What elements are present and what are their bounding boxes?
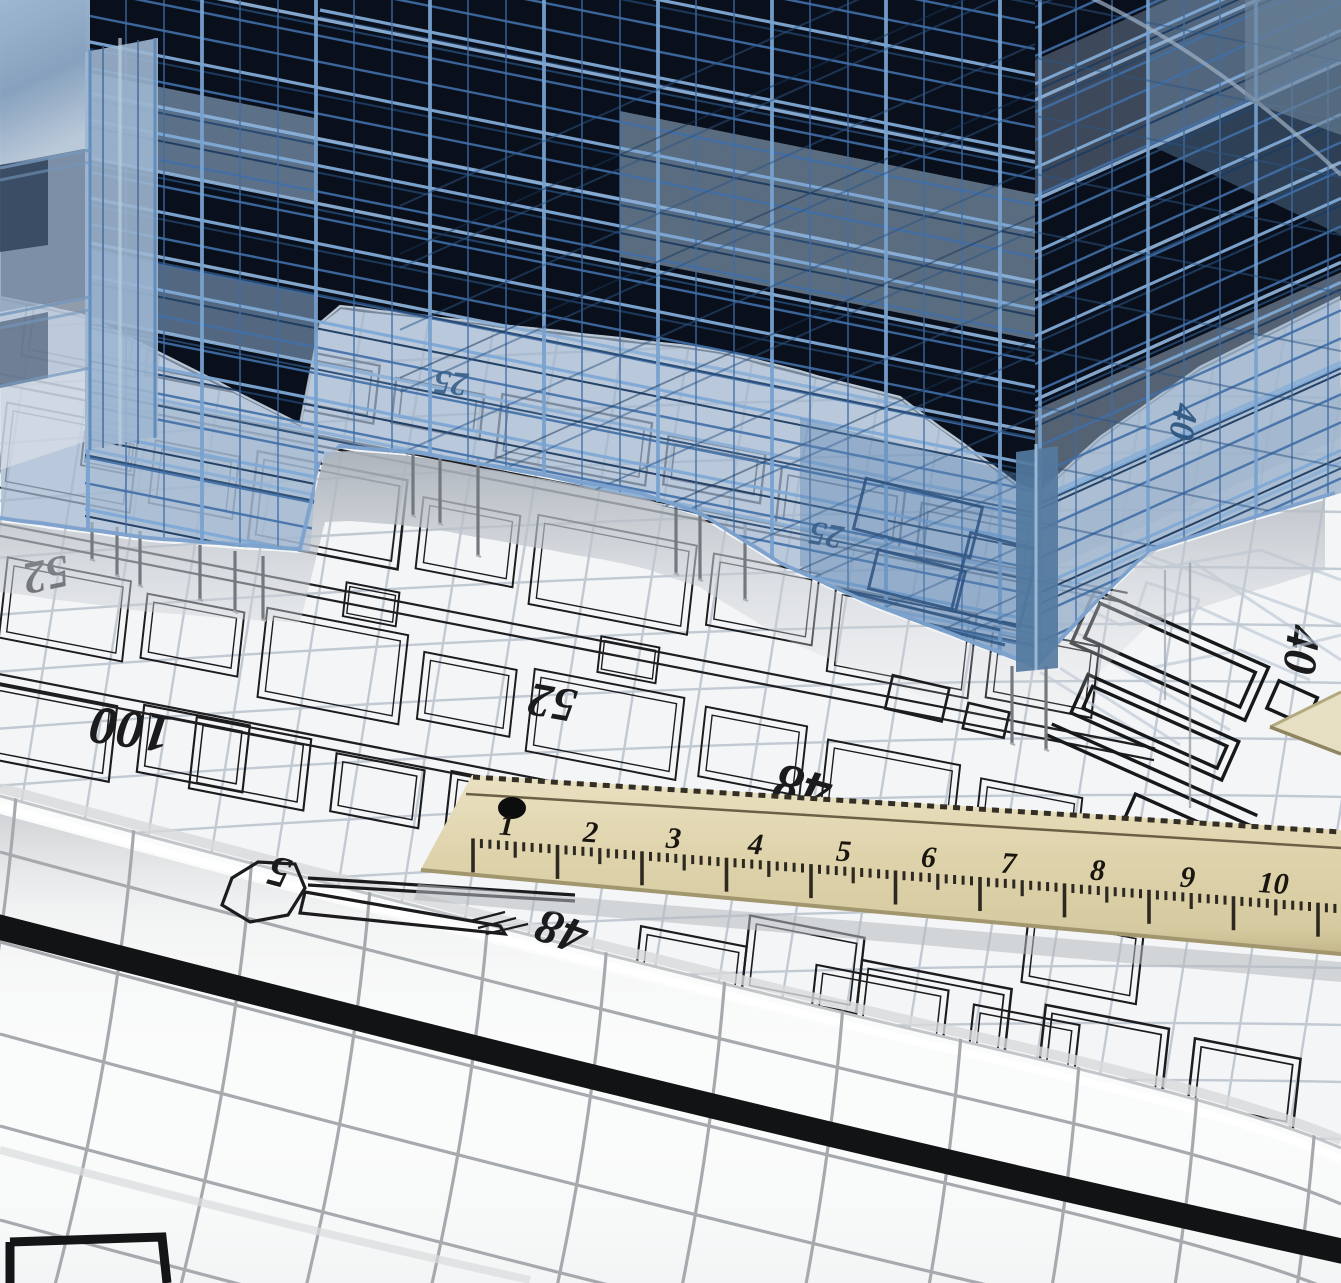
svg-text:100: 100 <box>86 694 175 765</box>
svg-text:52: 52 <box>524 672 580 733</box>
svg-text:1: 1 <box>498 809 515 843</box>
svg-text:3: 3 <box>664 821 682 855</box>
svg-text:5: 5 <box>835 835 852 869</box>
svg-text:2: 2 <box>581 815 599 849</box>
svg-text:9: 9 <box>1179 861 1196 895</box>
svg-text:8: 8 <box>1089 854 1106 888</box>
svg-text:6: 6 <box>920 841 937 875</box>
svg-text:25: 25 <box>806 513 847 556</box>
svg-text:40: 40 <box>1161 400 1207 443</box>
svg-text:10: 10 <box>1258 866 1290 901</box>
svg-text:25: 25 <box>432 362 471 402</box>
svg-text:4: 4 <box>746 827 764 861</box>
